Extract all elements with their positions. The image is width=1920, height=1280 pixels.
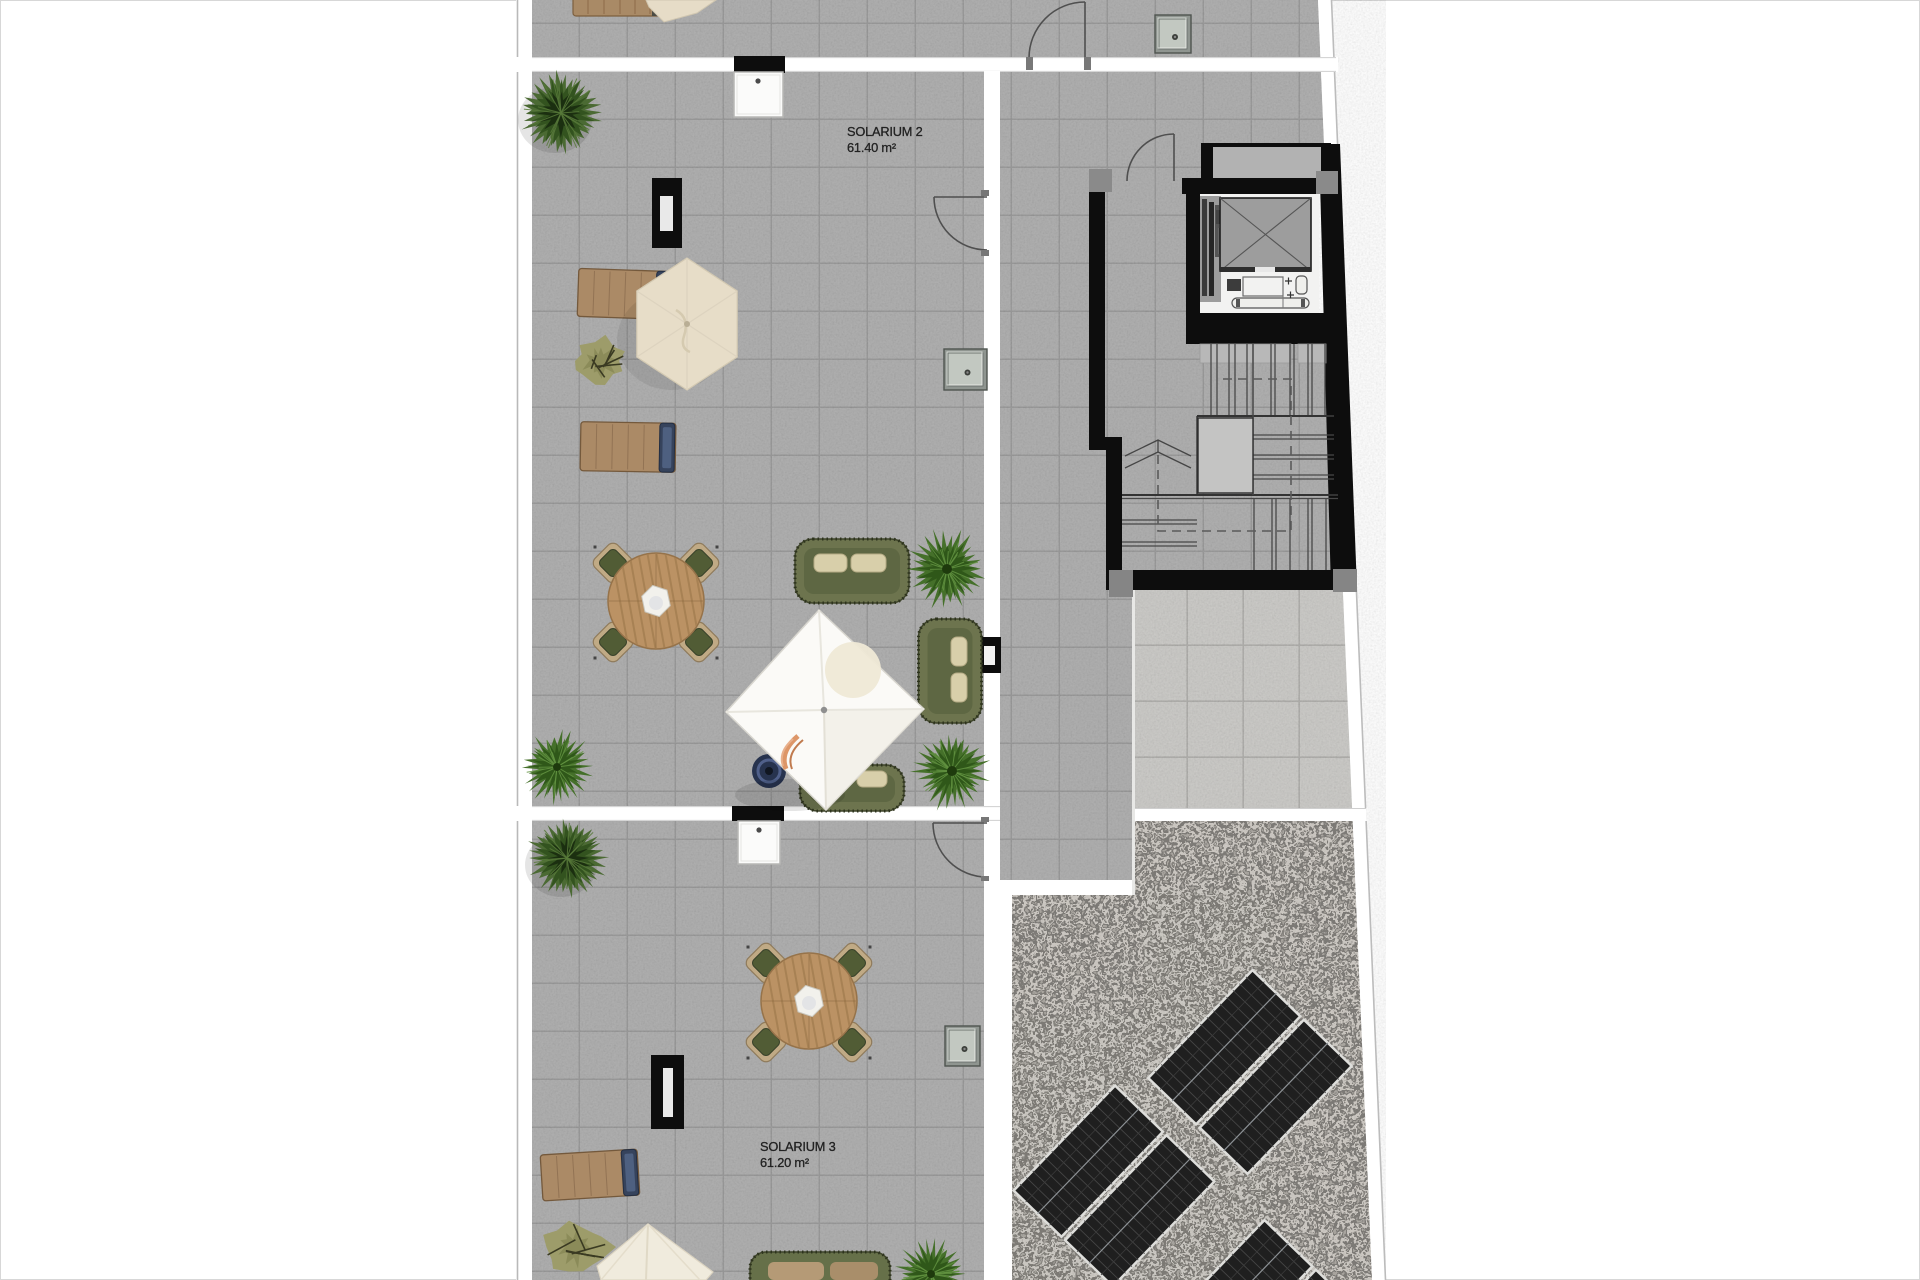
svg-text:SOLARIUM 2: SOLARIUM 2 <box>847 124 923 139</box>
svg-text:SOLARIUM 3: SOLARIUM 3 <box>760 1139 836 1154</box>
svg-text:61.20 m²: 61.20 m² <box>760 1155 810 1170</box>
svg-text:61.40 m²: 61.40 m² <box>847 140 897 155</box>
